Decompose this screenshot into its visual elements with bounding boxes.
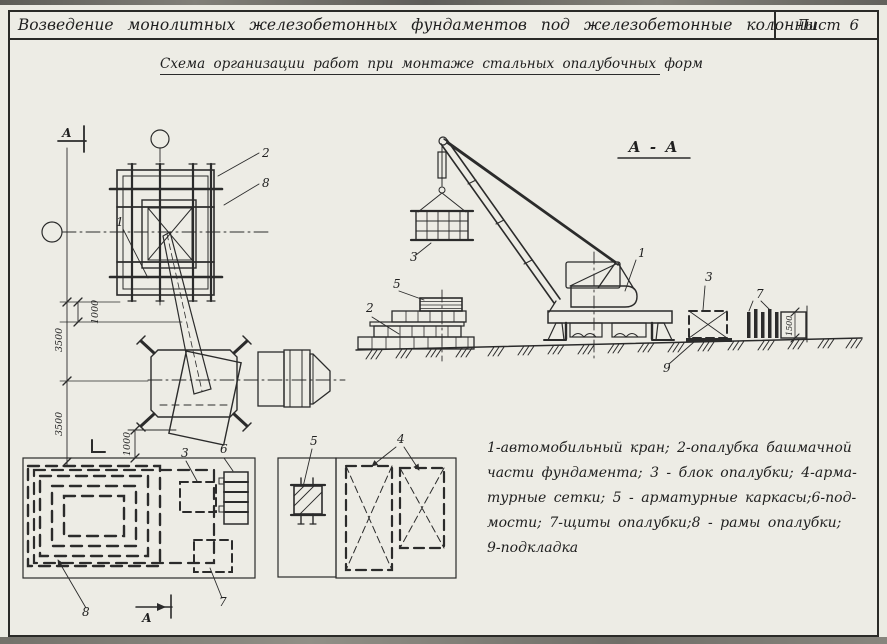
section-mark-top-letter: А [61, 126, 72, 140]
plan-crane-boom [163, 232, 211, 394]
callout-sec-formwork: 2 [365, 301, 374, 315]
drawing-sheet: Возведение монолитных железобетонных фун… [0, 0, 887, 644]
crane-cab [571, 286, 637, 307]
corner-mark [92, 440, 105, 452]
grid-bubble-left [42, 222, 62, 242]
dimension-chain-left: 3500 3500 1000 1000 [54, 148, 182, 466]
section-crane: 1 [439, 137, 674, 360]
formwork-block-stored [180, 482, 216, 512]
sheet-number: Лист 6 [796, 16, 859, 34]
section-ground-items: 3 9 7 1500 [663, 270, 807, 375]
callout-storage-block: 3 [181, 446, 189, 460]
callout-storage-panel: 7 [219, 595, 227, 609]
rebar-cage-stored [291, 478, 325, 524]
plan-truck-crane [137, 336, 345, 445]
scan-edge-bottom [0, 637, 887, 644]
callout-sec-block-hoisted: 3 [410, 250, 418, 264]
dim-3500-top: 3500 [54, 328, 65, 352]
legend-line-2: части фундамента; 3 - блок опалубки; 4-а… [487, 461, 879, 486]
grid-bubble-top [151, 130, 169, 148]
plan-formwork [110, 164, 222, 301]
rebar-mesh-stored [346, 466, 444, 570]
dim-1000-top: 1000 [90, 300, 101, 324]
rebar-cage-on-top [420, 298, 462, 311]
yard-diagrams: 5 4 [278, 432, 456, 578]
sheet-title: Возведение монолитных железобетонных фун… [65, 12, 770, 38]
legend-line-4: мости; 7-щиты опалубки;8 - рамы опалубки… [487, 511, 879, 536]
plan-axis-grid [42, 130, 268, 305]
callout-sec-crane: 1 [638, 246, 646, 260]
section-mark-bottom-letter: А [141, 611, 152, 625]
formwork-panels-ground [747, 309, 779, 338]
dim-3500-bottom: 3500 [54, 412, 65, 436]
legend-line-1: 1-автомобильный кран; 2-опалубка башмачн… [487, 436, 879, 461]
legend-line-5: 9-подкладка [487, 536, 879, 561]
legend: 1-автомобильный кран; 2-опалубка башмачн… [487, 436, 879, 561]
callout-plan-formwork: 2 [261, 146, 270, 160]
callout-yard-cages: 5 [310, 434, 318, 448]
section-mark-a-top: А [58, 126, 86, 152]
callout-yard-mesh: 4 [396, 432, 405, 446]
section-view-label: А - А [618, 138, 690, 158]
section-mark-a-bottom: А [136, 595, 172, 625]
scaffold-stored [219, 472, 248, 524]
section-view-title: А - А [627, 138, 679, 156]
section-stepped-formwork: 5 2 [358, 277, 474, 361]
callout-plan-frames: 8 [262, 176, 270, 190]
pad-under-block [686, 338, 732, 342]
scan-edge-top [0, 0, 887, 5]
callout-sec-block-ground: 3 [705, 270, 713, 284]
callout-storage-scaffold: 6 [220, 442, 228, 456]
crane-platform [548, 311, 672, 323]
legend-line-3: турные сетки; 5 - арматурные каркасы;6-п… [487, 486, 879, 511]
boom-backstay [444, 139, 618, 265]
sheet-number-cell: Лист 6 [774, 12, 879, 38]
callout-plan-crane: 1 [116, 215, 124, 229]
title-block: Возведение монолитных железобетонных фун… [8, 10, 879, 40]
callout-sec-panels: 7 [756, 287, 764, 301]
crane-hook [439, 187, 445, 193]
callout-storage-forms: 8 [82, 605, 90, 619]
callout-sec-cages: 5 [393, 277, 401, 291]
storage-area-plan: 3 6 7 8 [23, 442, 255, 619]
dim-1000-bottom: 1000 [122, 432, 133, 456]
dim-panel-height: 1500 [785, 316, 794, 336]
